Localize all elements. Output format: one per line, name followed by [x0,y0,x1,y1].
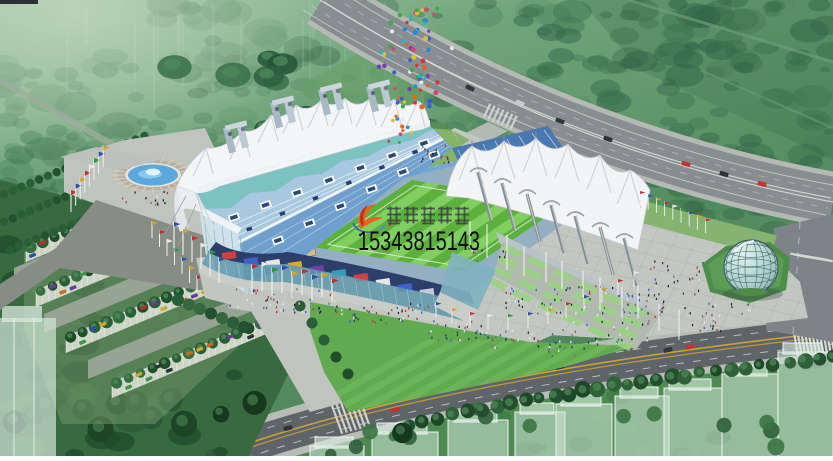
svg-text:15343815143: 15343815143 [358,226,480,256]
